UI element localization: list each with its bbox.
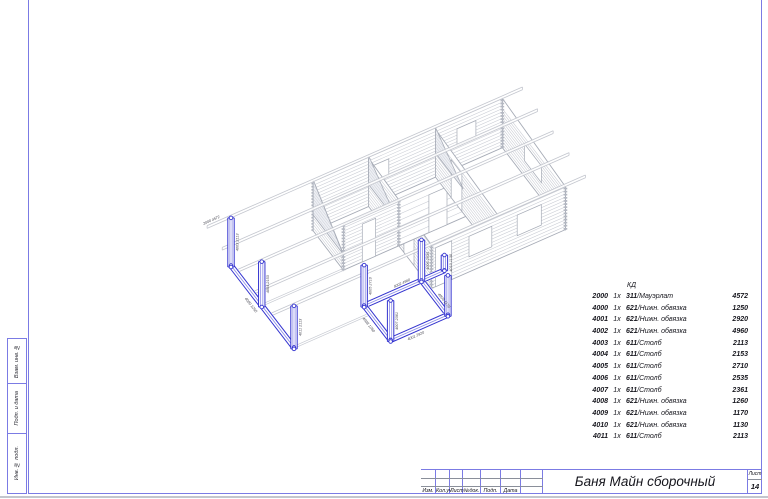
joint-marker	[446, 315, 450, 319]
part-id: 2000	[586, 291, 608, 303]
part-row: 40001x621/Нижн. обвязка1250	[586, 303, 750, 315]
part-name: 611/Столб	[626, 373, 720, 385]
part-qty: 1x	[608, 385, 626, 397]
part-id: 4004	[586, 349, 608, 361]
post-body	[387, 301, 394, 342]
stamp-box-0: Взам. инв. №	[7, 338, 27, 383]
parts-table-rows: 20001x311/Мауэрлат457240001x621/Нижн. об…	[586, 291, 750, 443]
part-qty: 1x	[608, 291, 626, 303]
part-name: 611/Столб	[626, 349, 720, 361]
sheet-number: 14	[748, 480, 762, 491]
part-qty: 1x	[608, 373, 626, 385]
stamp-box-2: Инв. № подл.	[7, 433, 27, 494]
part-length: 2361	[720, 385, 748, 397]
joint-marker	[229, 265, 233, 269]
drawing-title: Баня Майн сборочный	[543, 470, 747, 494]
part-name: 311/Мауэрлат	[626, 291, 720, 303]
title-block-gridline-1	[421, 478, 543, 479]
part-id: 4007	[586, 385, 608, 397]
joint-marker	[443, 253, 447, 257]
revision-col-label: Изм.	[421, 488, 435, 494]
part-id: 4011	[586, 431, 608, 443]
part-name: 621/Нижн. обвязка	[626, 314, 720, 326]
part-qty: 1x	[608, 338, 626, 350]
stamp-label: Взам. инв. №	[14, 344, 20, 378]
part-row: 40091x621/Нижн. обвязка1170	[586, 408, 750, 420]
part-name: 621/Нижн. обвязка	[626, 303, 720, 315]
part-row: 40101x621/Нижн. обвязка1130	[586, 420, 750, 432]
part-row: 20001x311/Мауэрлат4572	[586, 291, 750, 303]
revision-grid-col-6	[521, 470, 543, 494]
part-name: 621/Нижн. обвязка	[626, 420, 720, 432]
part-name: 611/Столб	[626, 361, 720, 373]
joint-marker	[420, 238, 424, 242]
member-label: 4006 2535	[426, 251, 430, 270]
post-body	[228, 218, 235, 267]
part-qty: 1x	[608, 396, 626, 408]
joint-marker	[443, 269, 447, 273]
part-id: 4009	[586, 408, 608, 420]
part-name: 611/Столб	[626, 385, 720, 397]
page-bottom-edge	[0, 496, 768, 498]
part-length: 4960	[720, 326, 748, 338]
parts-table-header: КД	[586, 280, 750, 291]
part-name: 611/Столб	[626, 338, 720, 350]
part-id: 4008	[586, 396, 608, 408]
joint-marker	[260, 260, 264, 264]
part-row: 40021x621/Нижн. обвязка4960	[586, 326, 750, 338]
title-block-gridline-2	[421, 486, 543, 487]
part-id: 4000	[586, 303, 608, 315]
part-row: 40011x621/Нижн. обвязка2920	[586, 314, 750, 326]
frame-right-line	[761, 0, 763, 494]
joint-marker	[362, 305, 366, 309]
revision-col-label: Кол.уч	[436, 488, 449, 494]
part-length: 2113	[720, 431, 748, 443]
part-qty: 1x	[608, 420, 626, 432]
revision-grid-col-1: Кол.уч	[436, 470, 450, 494]
drawing-sheet: 4003 21134004 21534011 21134005 27104006…	[0, 0, 768, 499]
part-qty: 1x	[608, 361, 626, 373]
joint-marker	[389, 299, 393, 303]
part-qty: 1x	[608, 431, 626, 443]
part-id: 4010	[586, 420, 608, 432]
stamp-box-1: Подп. и дата	[7, 383, 27, 433]
part-id: 4001	[586, 314, 608, 326]
joint-marker	[260, 305, 264, 309]
member-label: 4011 2113	[299, 318, 303, 336]
part-qty: 1x	[608, 326, 626, 338]
revision-col-label: №док.	[463, 488, 480, 494]
structure-line	[294, 313, 370, 347]
side-stamp-column: Взам. инв. №Подп. и датаИнв. № подл.	[7, 338, 27, 494]
stamp-label: Подп. и дата	[14, 391, 20, 425]
part-length: 2920	[720, 314, 748, 326]
part-length: 1260	[720, 396, 748, 408]
part-name: 621/Нижн. обвязка	[626, 326, 720, 338]
part-length: 4572	[720, 291, 748, 303]
structure-line	[365, 273, 445, 308]
part-length: 2113	[720, 338, 748, 350]
part-length: 2710	[720, 361, 748, 373]
joint-marker	[229, 216, 233, 220]
part-id: 4003	[586, 338, 608, 350]
frame-left-line	[28, 0, 30, 494]
part-id: 4002	[586, 326, 608, 338]
post-body	[418, 240, 425, 282]
revision-grid-col-5: Дата	[501, 470, 521, 494]
member-label: 4005 2710	[369, 276, 373, 295]
part-name: 611/Столб	[626, 431, 720, 443]
structure-line	[294, 315, 370, 349]
joint-marker	[420, 280, 424, 284]
part-row: 40061x611/Столб2535	[586, 373, 750, 385]
member-label: 4004 2153	[266, 274, 270, 293]
member-label: 4007 2361	[395, 312, 399, 330]
part-length: 1170	[720, 408, 748, 420]
joint-marker	[389, 340, 393, 344]
sheet-number-box: Лист 14	[747, 470, 762, 494]
part-length: 1130	[720, 420, 748, 432]
title-block-revision-grid: Изм.Кол.учЛист№док.Подп.Дата	[421, 470, 543, 494]
joint-marker	[362, 263, 366, 267]
part-row: 40111x611/Столб2113	[586, 431, 750, 443]
revision-col-label: Подп.	[481, 488, 500, 494]
revision-grid-col-2: Лист	[450, 470, 463, 494]
part-length: 2153	[720, 349, 748, 361]
part-row: 40041x611/Столб2153	[586, 349, 750, 361]
revision-grid-col-4: Подп.	[481, 470, 501, 494]
member-label: 4010 1130	[449, 253, 453, 272]
revision-grid-col-0: Изм.	[421, 470, 436, 494]
part-name: 621/Нижн. обвязка	[626, 408, 720, 420]
part-id: 4005	[586, 361, 608, 373]
joint-marker	[446, 274, 450, 278]
part-length: 1250	[720, 303, 748, 315]
member-label: 4003 2113	[236, 233, 240, 252]
part-id: 4006	[586, 373, 608, 385]
joint-marker	[292, 347, 296, 351]
part-qty: 1x	[608, 349, 626, 361]
title-block: Изм.Кол.учЛист№док.Подп.Дата Баня Майн с…	[421, 469, 762, 494]
joint-marker	[292, 304, 296, 308]
part-length: 2535	[720, 373, 748, 385]
post-body	[291, 306, 298, 349]
parts-table: КД 20001x311/Мауэрлат457240001x621/Нижн.…	[586, 280, 750, 443]
sheet-label: Лист	[748, 470, 762, 480]
post-body	[445, 275, 452, 316]
part-name: 621/Нижн. обвязка	[626, 396, 720, 408]
revision-col-label: Лист	[450, 488, 462, 494]
stamp-label: Инв. № подл.	[14, 446, 20, 480]
post-body	[258, 262, 265, 307]
revision-grid-col-3: №док.	[463, 470, 481, 494]
part-row: 40071x611/Столб2361	[586, 385, 750, 397]
part-row: 40051x611/Столб2710	[586, 361, 750, 373]
part-qty: 1x	[608, 408, 626, 420]
revision-col-label: Дата	[501, 488, 520, 494]
part-row: 40081x621/Нижн. обвязка1260	[586, 396, 750, 408]
part-qty: 1x	[608, 303, 626, 315]
part-qty: 1x	[608, 314, 626, 326]
part-row: 40031x611/Столб2113	[586, 338, 750, 350]
structure-line	[392, 317, 449, 342]
post-body	[361, 265, 368, 307]
